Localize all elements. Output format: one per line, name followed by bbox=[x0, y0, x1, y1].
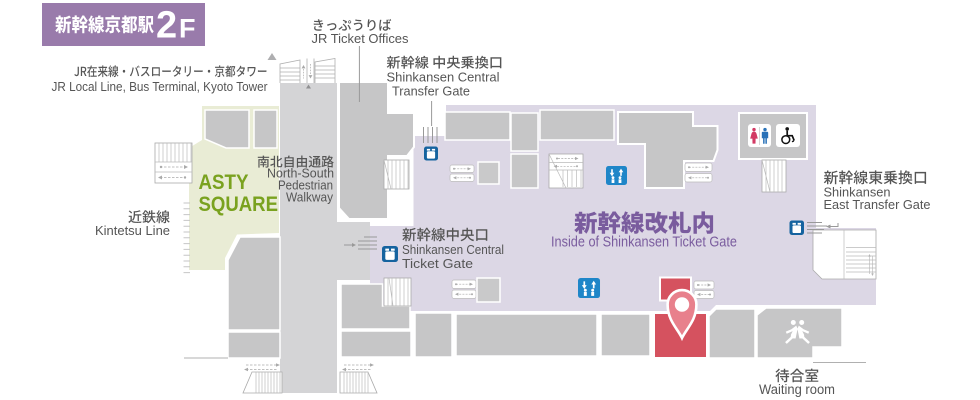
svg-text:Transfer Gate: Transfer Gate bbox=[392, 84, 470, 99]
svg-text:Walkway: Walkway bbox=[286, 190, 333, 205]
svg-text:SQUARE: SQUARE bbox=[199, 193, 279, 216]
svg-text:JR Ticket Offices: JR Ticket Offices bbox=[312, 31, 409, 46]
svg-text:East Transfer Gate: East Transfer Gate bbox=[824, 197, 931, 212]
svg-text:F: F bbox=[179, 14, 196, 44]
svg-text:2: 2 bbox=[156, 5, 177, 47]
svg-text:JR Local Line, Bus Terminal, K: JR Local Line, Bus Terminal, Kyoto Tower bbox=[52, 80, 269, 94]
svg-text:Ticket Gate: Ticket Gate bbox=[402, 256, 473, 271]
svg-text:Inside of Shinkansen Ticket Ga: Inside of Shinkansen Ticket Gate bbox=[551, 235, 737, 251]
svg-text:Shinkansen Central: Shinkansen Central bbox=[402, 242, 504, 257]
svg-text:ASTY: ASTY bbox=[199, 171, 249, 194]
svg-text:Kintetsu Line: Kintetsu Line bbox=[95, 223, 170, 238]
svg-text:Waiting room: Waiting room bbox=[759, 382, 835, 397]
svg-text:Shinkansen Central: Shinkansen Central bbox=[387, 70, 500, 85]
